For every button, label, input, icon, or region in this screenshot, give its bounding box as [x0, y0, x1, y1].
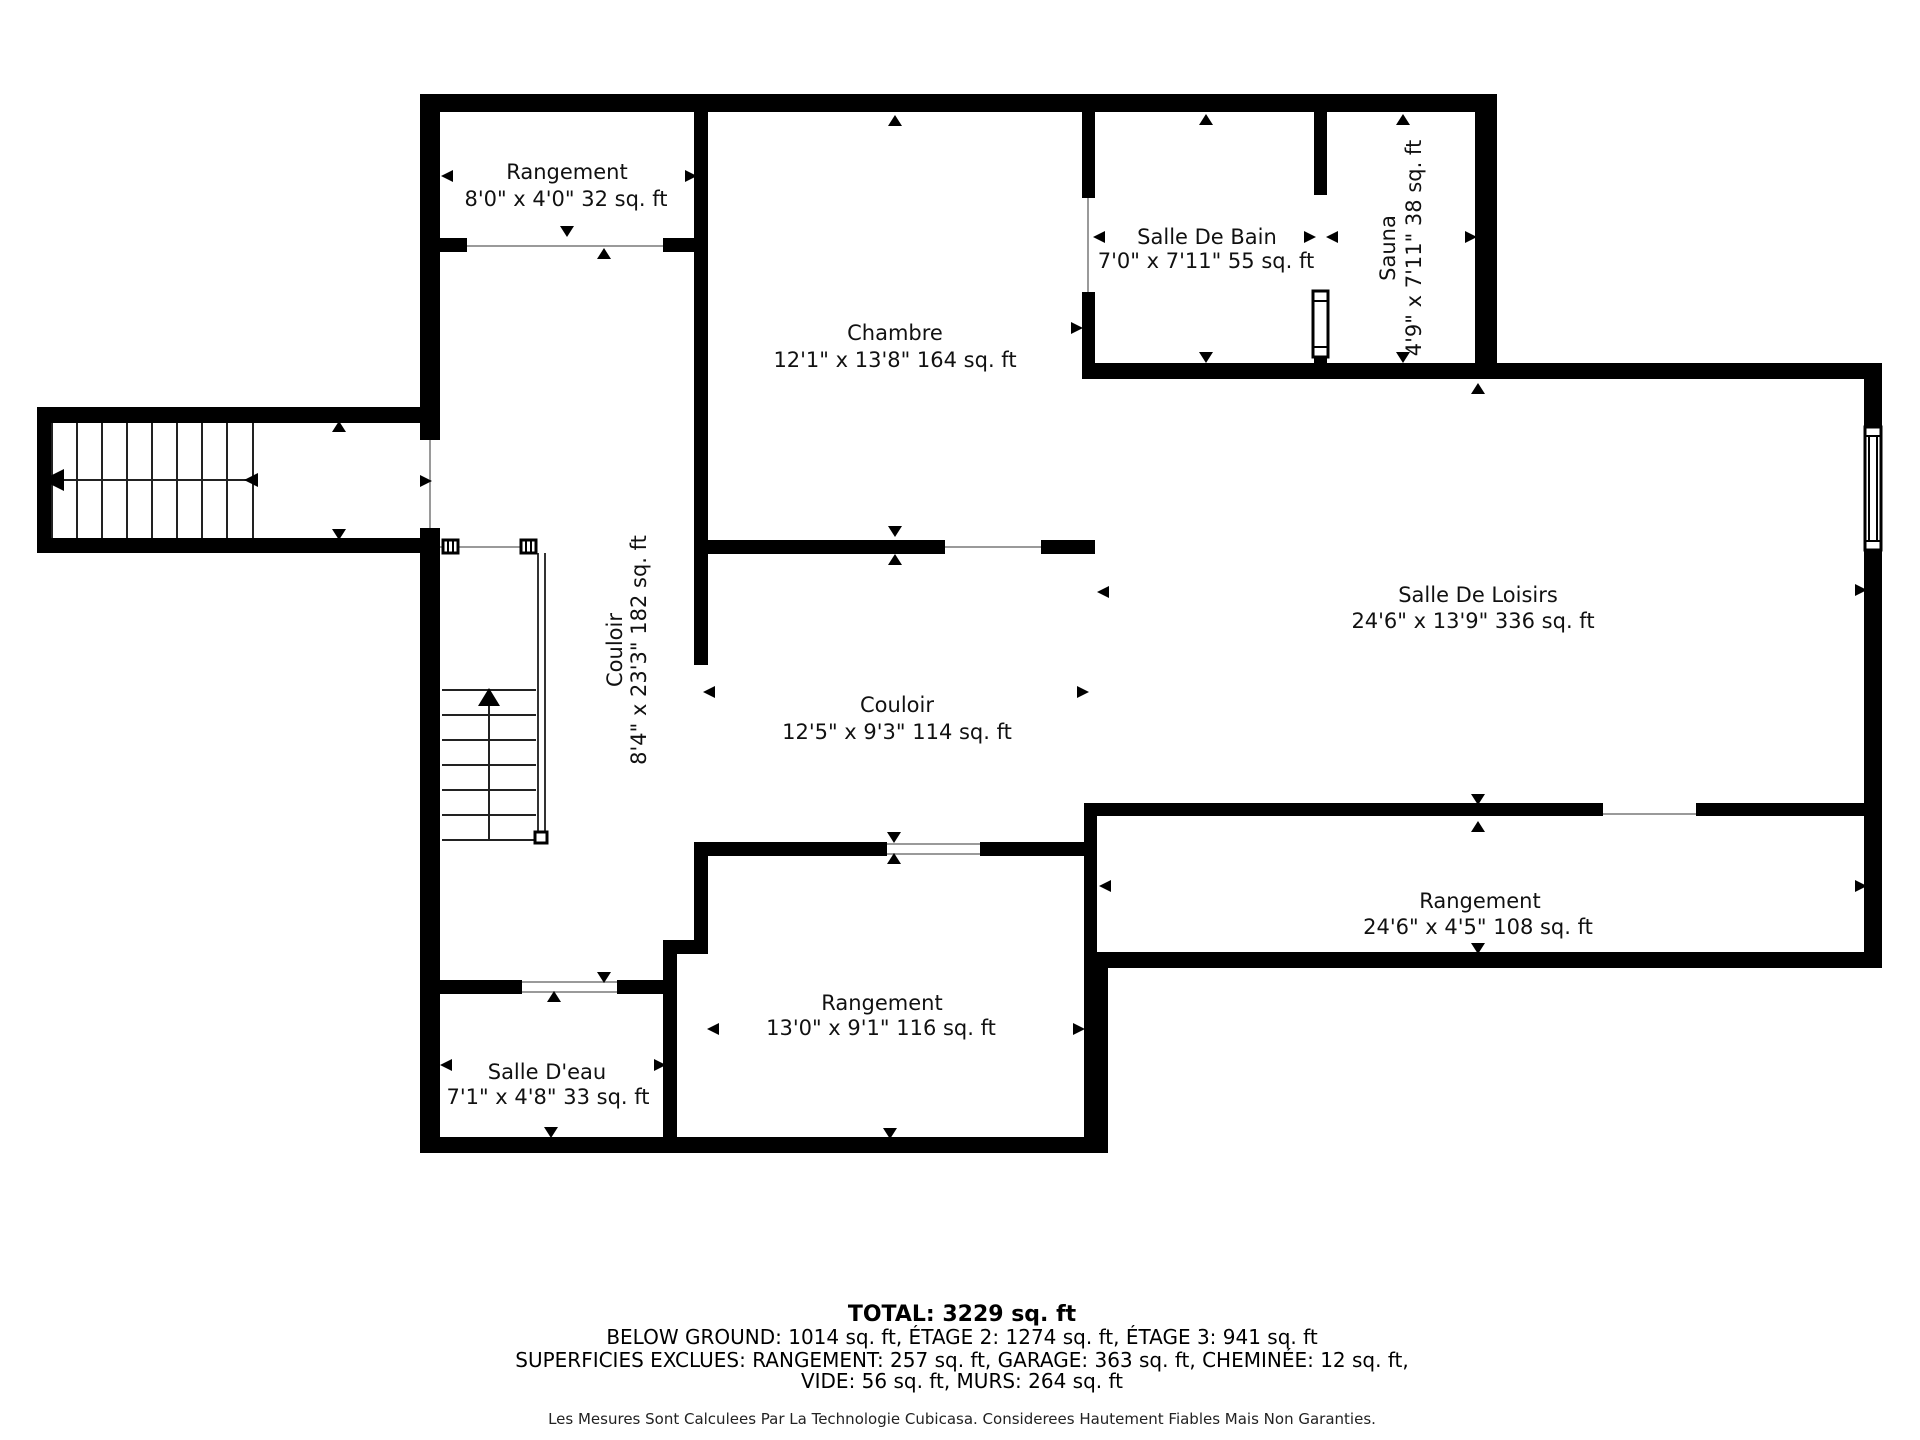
wall-left-lower: [420, 553, 440, 1153]
wall-chambre-east-lower: [1082, 292, 1095, 379]
measure-arrow-right: [1073, 1023, 1085, 1035]
floor-plan-page: Rangement 8'0" x 4'0" 32 sq. ft Chambre …: [0, 0, 1920, 1440]
measure-arrow-up: [1396, 114, 1410, 125]
wall-rangement-sud-top-right-seg: [980, 842, 1084, 856]
wall-chambre-bottom-left-seg: [694, 540, 945, 554]
wall-rangement-nw-bottom-left-seg: [420, 238, 467, 252]
room-label-rangement-est: Rangement: [1419, 889, 1540, 913]
measure-arrow-down: [544, 1127, 558, 1138]
newel-post-icon: [521, 540, 536, 553]
measure-arrow-right: [1071, 322, 1083, 334]
wall-rangement-est-west: [1084, 803, 1097, 956]
wall-top: [420, 94, 1497, 112]
room-dims-salle-de-bain: 7'0" x 7'11" 55 sq. ft: [1098, 249, 1314, 273]
measure-arrow-left: [1099, 880, 1111, 892]
wall-rangement-nw-bottom-right-seg: [663, 238, 708, 252]
measure-arrow-left: [707, 1023, 719, 1035]
measure-arrow-down: [887, 832, 901, 843]
measure-arrow-up: [888, 115, 902, 126]
wall-rangement-sud-top-left-seg: [694, 842, 887, 856]
room-label-rangement-nw: Rangement: [506, 160, 627, 184]
room-dims-rangement-sud: 13'0" x 9'1" 116 sq. ft: [766, 1016, 996, 1040]
measure-arrow-up: [888, 554, 902, 565]
wall-bottom: [420, 1137, 1108, 1153]
measure-arrow-right: [1077, 686, 1089, 698]
wall-bain-sauna-stub: [1314, 358, 1327, 379]
railing-end-post: [535, 832, 547, 843]
stair-direction-start-icon: [244, 473, 258, 487]
room-dims-salle-de-loisirs: 24'6" x 13'9" 336 sq. ft: [1351, 609, 1594, 633]
measure-arrow-up: [1471, 383, 1485, 394]
newel-post: [443, 540, 458, 553]
windows: [1313, 291, 1881, 550]
room-dims-couloir-central: 12'5" x 9'3" 114 sq. ft: [782, 720, 1012, 744]
wall-salle-deau-top-left-seg: [440, 980, 522, 994]
newel-post: [521, 540, 536, 553]
measure-arrow-left: [703, 686, 715, 698]
footer-disclaimer: Les Mesures Sont Calculees Par La Techno…: [548, 1410, 1376, 1428]
floor-plan-canvas: Rangement 8'0" x 4'0" 32 sq. ft Chambre …: [0, 0, 1920, 1440]
footer: TOTAL: 3229 sq. ft BELOW GROUND: 1014 sq…: [515, 1302, 1408, 1428]
window-frame: [1865, 427, 1881, 550]
measure-arrow-right: [1304, 231, 1316, 243]
measure-arrow-left: [1093, 231, 1105, 243]
window-icon: [1865, 427, 1881, 550]
measure-arrow-left: [1097, 586, 1109, 598]
measure-arrow-down: [1199, 352, 1213, 363]
room-dims-sauna: 4'9" x 7'11" 38 sq. ft: [1402, 140, 1426, 356]
measure-arrow-up: [1471, 821, 1485, 832]
wall-rangement-est-bottom: [1097, 952, 1882, 968]
footer-total: TOTAL: 3229 sq. ft: [848, 1302, 1077, 1327]
footer-floors: BELOW GROUND: 1014 sq. ft, ÉTAGE 2: 1274…: [606, 1325, 1317, 1349]
wall-left-opening-stub-top: [420, 423, 440, 440]
room-label-sauna: Sauna: [1376, 215, 1400, 281]
sliding-door-icon: [1313, 291, 1328, 357]
wall-rangement-sud-west-lower: [663, 940, 677, 1153]
wall-left-opening-stub-bottom: [420, 528, 440, 553]
room-dims-salle-deau: 7'1" x 4'8" 33 sq. ft: [446, 1085, 649, 1109]
room-label-couloir-central: Couloir: [860, 693, 934, 717]
wall-salle-deau-top-right-seg: [617, 980, 663, 994]
measure-arrow-up: [1199, 114, 1213, 125]
wall-bain-sauna-upper: [1314, 112, 1327, 195]
room-label-couloir-ouest: Couloir: [603, 613, 627, 687]
room-label-salle-de-loisirs: Salle De Loisirs: [1398, 583, 1558, 607]
room-dims-rangement-nw: 8'0" x 4'0" 32 sq. ft: [464, 187, 667, 211]
room-dims-chambre: 12'1" x 13'8" 164 sq. ft: [773, 348, 1016, 372]
wall-sauna-east: [1475, 94, 1497, 379]
room-dims-rangement-est: 24'6" x 4'5" 108 sq. ft: [1363, 915, 1593, 939]
newel-post-icon: [443, 540, 458, 553]
room-label-chambre: Chambre: [847, 321, 943, 345]
wall-loisirs-bottom-right-seg: [1696, 803, 1865, 816]
wall-chambre-east-upper: [1082, 112, 1095, 198]
measure-arrow-down: [560, 226, 574, 237]
measure-arrow-down: [888, 526, 902, 537]
measure-arrow-up: [597, 248, 611, 259]
footer-excluded-2: VIDE: 56 sq. ft, MURS: 264 sq. ft: [801, 1369, 1123, 1393]
wall-rangement-sud-east: [1084, 952, 1108, 1153]
wall-couloir-east: [694, 112, 708, 665]
wall-left-upper: [420, 94, 440, 423]
measure-arrow-left: [440, 1059, 452, 1071]
stairs-exterior: [42, 423, 258, 538]
room-dims-couloir-ouest: 8'4" x 23'3" 182 sq. ft: [627, 535, 651, 765]
stairs-interior: [442, 540, 547, 843]
measure-arrow-left: [441, 170, 453, 182]
wall-chambre-bottom-right-seg: [1041, 540, 1095, 554]
wall-loisirs-bottom-left-seg: [1097, 803, 1603, 816]
wall-rangement-sud-west-upper: [694, 842, 708, 954]
wall-stairblock-top: [37, 407, 440, 423]
room-label-salle-deau: Salle D'eau: [488, 1060, 607, 1084]
wall-stairblock-bottom: [37, 538, 440, 553]
measure-arrow-left: [1326, 231, 1338, 243]
room-label-salle-de-bain: Salle De Bain: [1137, 225, 1277, 249]
room-label-rangement-sud: Rangement: [821, 991, 942, 1015]
walls: [37, 94, 1882, 1153]
